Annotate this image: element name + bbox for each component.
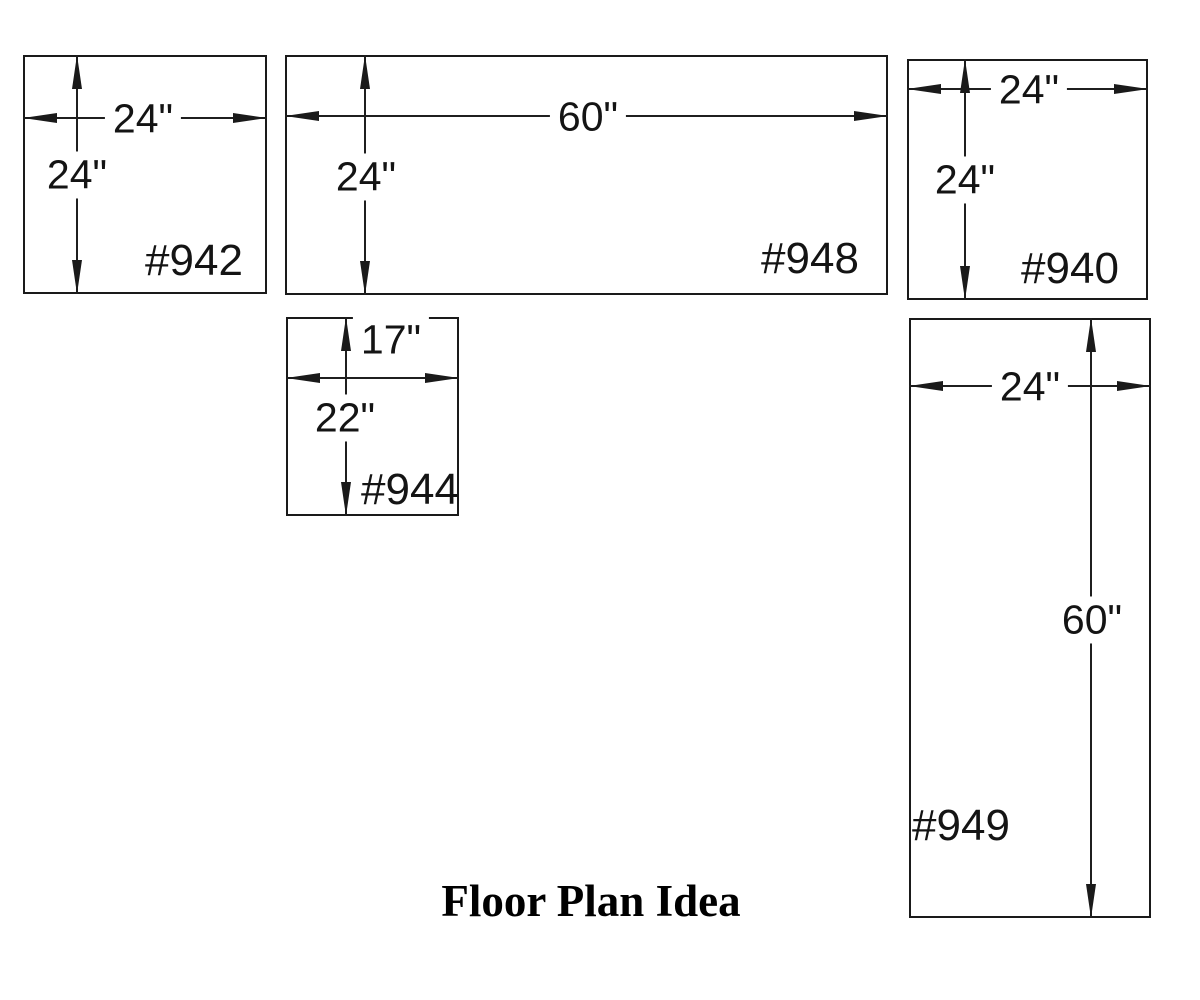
box-949-width-dim-label: 24": [992, 363, 1068, 410]
box-940-height-dim-label: 24": [927, 156, 1003, 203]
box-949-height-dim-label: 60": [1054, 596, 1130, 643]
box-940-width-arrow-left-icon: [907, 84, 941, 94]
box-944-width-arrow-right-icon: [425, 373, 459, 383]
box-942-part-number: #942: [145, 239, 243, 283]
box-944-height-arrow-up-icon: [341, 317, 351, 351]
box-948-part-number: #948: [761, 237, 859, 281]
box-944-width-arrow-left-icon: [286, 373, 320, 383]
box-948-height-arrow-up-icon: [360, 55, 370, 89]
box-942-width-arrow-left-icon: [23, 113, 57, 123]
box-948-width-arrow-left-icon: [285, 111, 319, 121]
box-944-height-dim-label: 22": [307, 394, 383, 441]
box-948-height-dim-label: 24": [328, 153, 404, 200]
box-942-height-arrow-up-icon: [72, 55, 82, 89]
box-940-part-number: #940: [1021, 247, 1119, 291]
box-949-height-arrow-down-icon: [1086, 884, 1096, 918]
floor-plan-diagram: 24" 24" #942 60" 24" #948 24" 24" #940 1…: [0, 0, 1200, 1000]
box-949-width-arrow-left-icon: [909, 381, 943, 391]
box-940-height-arrow-up-icon: [960, 59, 970, 93]
box-942-height-dim-label: 24": [39, 151, 115, 198]
box-948-height-arrow-down-icon: [360, 261, 370, 295]
box-944-height-arrow-down-icon: [341, 482, 351, 516]
diagram-title: Floor Plan Idea: [441, 875, 740, 927]
box-949-width-arrow-right-icon: [1117, 381, 1151, 391]
box-942-height-arrow-down-icon: [72, 260, 82, 294]
box-944-width-dim-label: 17": [353, 316, 429, 363]
box-940-width-dim-label: 24": [991, 66, 1067, 113]
box-949-height-arrow-up-icon: [1086, 318, 1096, 352]
box-942-width-dim-label: 24": [105, 95, 181, 142]
box-944-part-number: #944: [361, 468, 459, 512]
box-949-part-number: #949: [912, 804, 1010, 848]
box-948-width-dim-label: 60": [550, 93, 626, 140]
box-940-height-arrow-down-icon: [960, 266, 970, 300]
box-942-width-arrow-right-icon: [233, 113, 267, 123]
box-948-width-arrow-right-icon: [854, 111, 888, 121]
box-940-width-arrow-right-icon: [1114, 84, 1148, 94]
